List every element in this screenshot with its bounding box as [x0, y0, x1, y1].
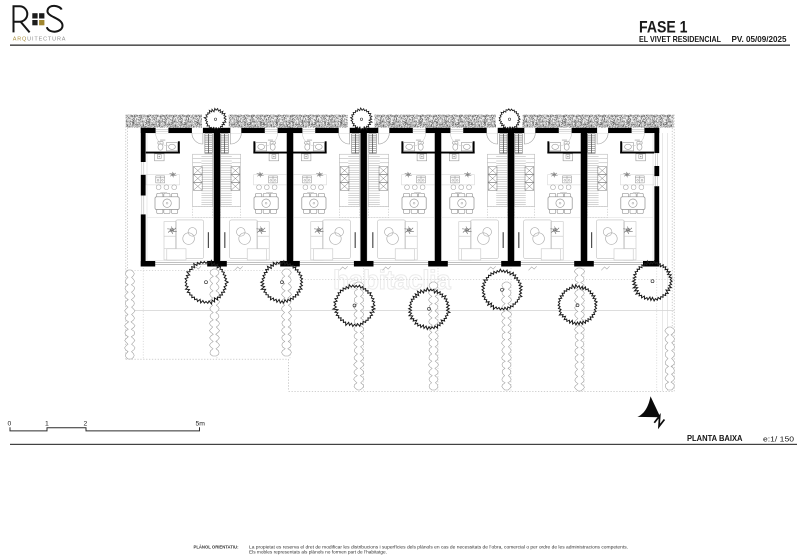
- svg-text:PV. 05/09/2025: PV. 05/09/2025: [732, 34, 787, 44]
- svg-text:2: 2: [84, 420, 88, 427]
- svg-text:0: 0: [8, 420, 12, 427]
- svg-text:La propietat es reserva el dre: La propietat es reserva el dret de modif…: [249, 544, 628, 549]
- svg-text:ARQUITECTURA: ARQUITECTURA: [13, 36, 67, 42]
- svg-text:5m: 5m: [196, 420, 206, 427]
- svg-text:EL VIVET RESIDENCIAL: EL VIVET RESIDENCIAL: [639, 34, 721, 44]
- svg-text:PLÀNOL ORIENTATIU:: PLÀNOL ORIENTATIU:: [194, 545, 240, 550]
- svg-text:PLANTA BAIXA: PLANTA BAIXA: [687, 433, 743, 443]
- svg-text:e:1/ 150: e:1/ 150: [763, 434, 794, 443]
- svg-text:Els mobles representats als pl: Els mobles representats als plànols no f…: [249, 550, 387, 555]
- svg-text:1: 1: [45, 420, 49, 427]
